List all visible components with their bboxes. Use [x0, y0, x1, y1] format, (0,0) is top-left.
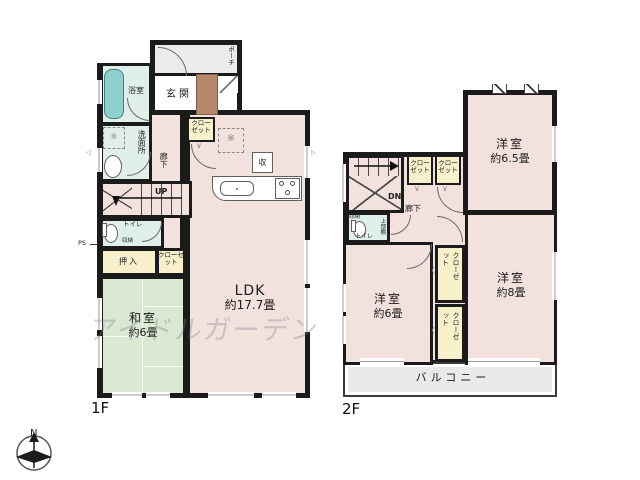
vent-arrow: ▷: [311, 150, 316, 157]
window: [340, 284, 346, 312]
f2-toilet-storage-label: 収納: [349, 214, 360, 220]
f1-stairs-arrow: [100, 190, 192, 216]
f1-oshiire-label: 押入: [100, 257, 158, 266]
f1-washbasin: [104, 155, 122, 178]
f2-balcony-label: バルコニー: [393, 372, 513, 385]
f2-room65-size: 約6.5畳: [465, 153, 555, 166]
f2-room6-name: 洋室: [345, 293, 431, 307]
f2-room8-name: 洋室: [467, 272, 555, 286]
sliding-door: [468, 358, 540, 365]
f2-closet-d-chevron: 〈: [427, 326, 435, 335]
window: [340, 316, 346, 344]
f1-fridge-mark: ※: [218, 133, 244, 145]
window: [304, 146, 310, 178]
f1-stairs-up-label: UP: [155, 187, 167, 196]
window: [552, 126, 558, 162]
f2-corridor-label: 廊下: [405, 204, 421, 213]
f2-closet-d-label: クローゼット: [440, 312, 461, 346]
window: [262, 392, 296, 398]
window: [552, 252, 558, 300]
f1-bath-label: 浴室: [128, 86, 144, 95]
f2-room6-size: 約6畳: [345, 308, 431, 321]
f1-porch-label: ポーチ: [226, 46, 233, 76]
f1-burner: [279, 181, 284, 186]
compass-north-label: N: [30, 428, 37, 439]
watermark: アイドルガーデン: [87, 308, 322, 347]
window: [146, 392, 170, 398]
f1-burner: [285, 190, 290, 195]
f2-room8-size: 約8畳: [467, 287, 555, 300]
f2-closet-a-chevron: ∨: [414, 184, 420, 193]
window: [340, 164, 346, 202]
f1-floor-label: 1F: [91, 399, 109, 417]
f1-ps-tick: [90, 244, 97, 245]
f1-entrance-step: [196, 74, 218, 115]
window: [208, 392, 254, 398]
f2-room65-name: 洋室: [465, 138, 555, 152]
f1-shoe-cabinet: [219, 76, 238, 93]
vent-mark: [524, 84, 539, 94]
f2-toilet-shelf-label: 上部棚: [379, 218, 385, 240]
sliding-door: [360, 358, 404, 365]
f1-toilet-tank: [102, 223, 107, 237]
f1-ldk-name: LDK: [205, 283, 295, 299]
f1-tatami-line: [143, 306, 183, 307]
f2-closet-c-label: クローゼット: [440, 252, 461, 286]
f2-toilet-tank: [351, 220, 356, 232]
f2-toilet-label: トイレ: [355, 234, 373, 241]
f1-ps-label: PS: [78, 240, 86, 247]
f1-burner: [290, 181, 295, 186]
window: [96, 80, 102, 104]
f1-tatami-line: [143, 366, 183, 367]
f1-sink-drain: [236, 188, 238, 190]
f2-closet-b-label: クローゼット: [437, 160, 459, 175]
vent-arrow: ◁: [86, 150, 91, 157]
f1-genkan-label: 玄関: [166, 89, 192, 101]
f1-laundry-mark: ※: [103, 132, 125, 141]
window: [96, 148, 102, 172]
window: [112, 392, 142, 398]
vent-mark: [492, 84, 507, 94]
f1-washitsu-closet-label: クローゼット: [158, 252, 184, 267]
f1-kitchen-storage-label: 収: [252, 158, 273, 167]
f2-closet-a-label: クローゼット: [409, 160, 431, 175]
compass: N: [10, 424, 60, 476]
floor-plan-image: ポーチ 玄関 浴室 ※ 洗面所 廊下 UP クローゼット ∨ トイレ 収納 PS…: [0, 0, 640, 480]
f1-toilet-storage-label: 収納: [122, 238, 133, 244]
f2-stairs-dn-label: DN: [388, 192, 401, 201]
f2-closet-c-chevron: 〈: [427, 266, 435, 275]
window: [304, 240, 310, 284]
f1-toilet-label: トイレ: [123, 221, 143, 228]
f2-stairs-arrow: [348, 156, 404, 176]
f1-entry-closet-label: クローゼット: [189, 120, 213, 135]
f1-bathtub: [104, 69, 124, 119]
f2-floor-label: 2F: [342, 400, 360, 418]
f1-corridor-label: 廊下: [159, 152, 168, 178]
